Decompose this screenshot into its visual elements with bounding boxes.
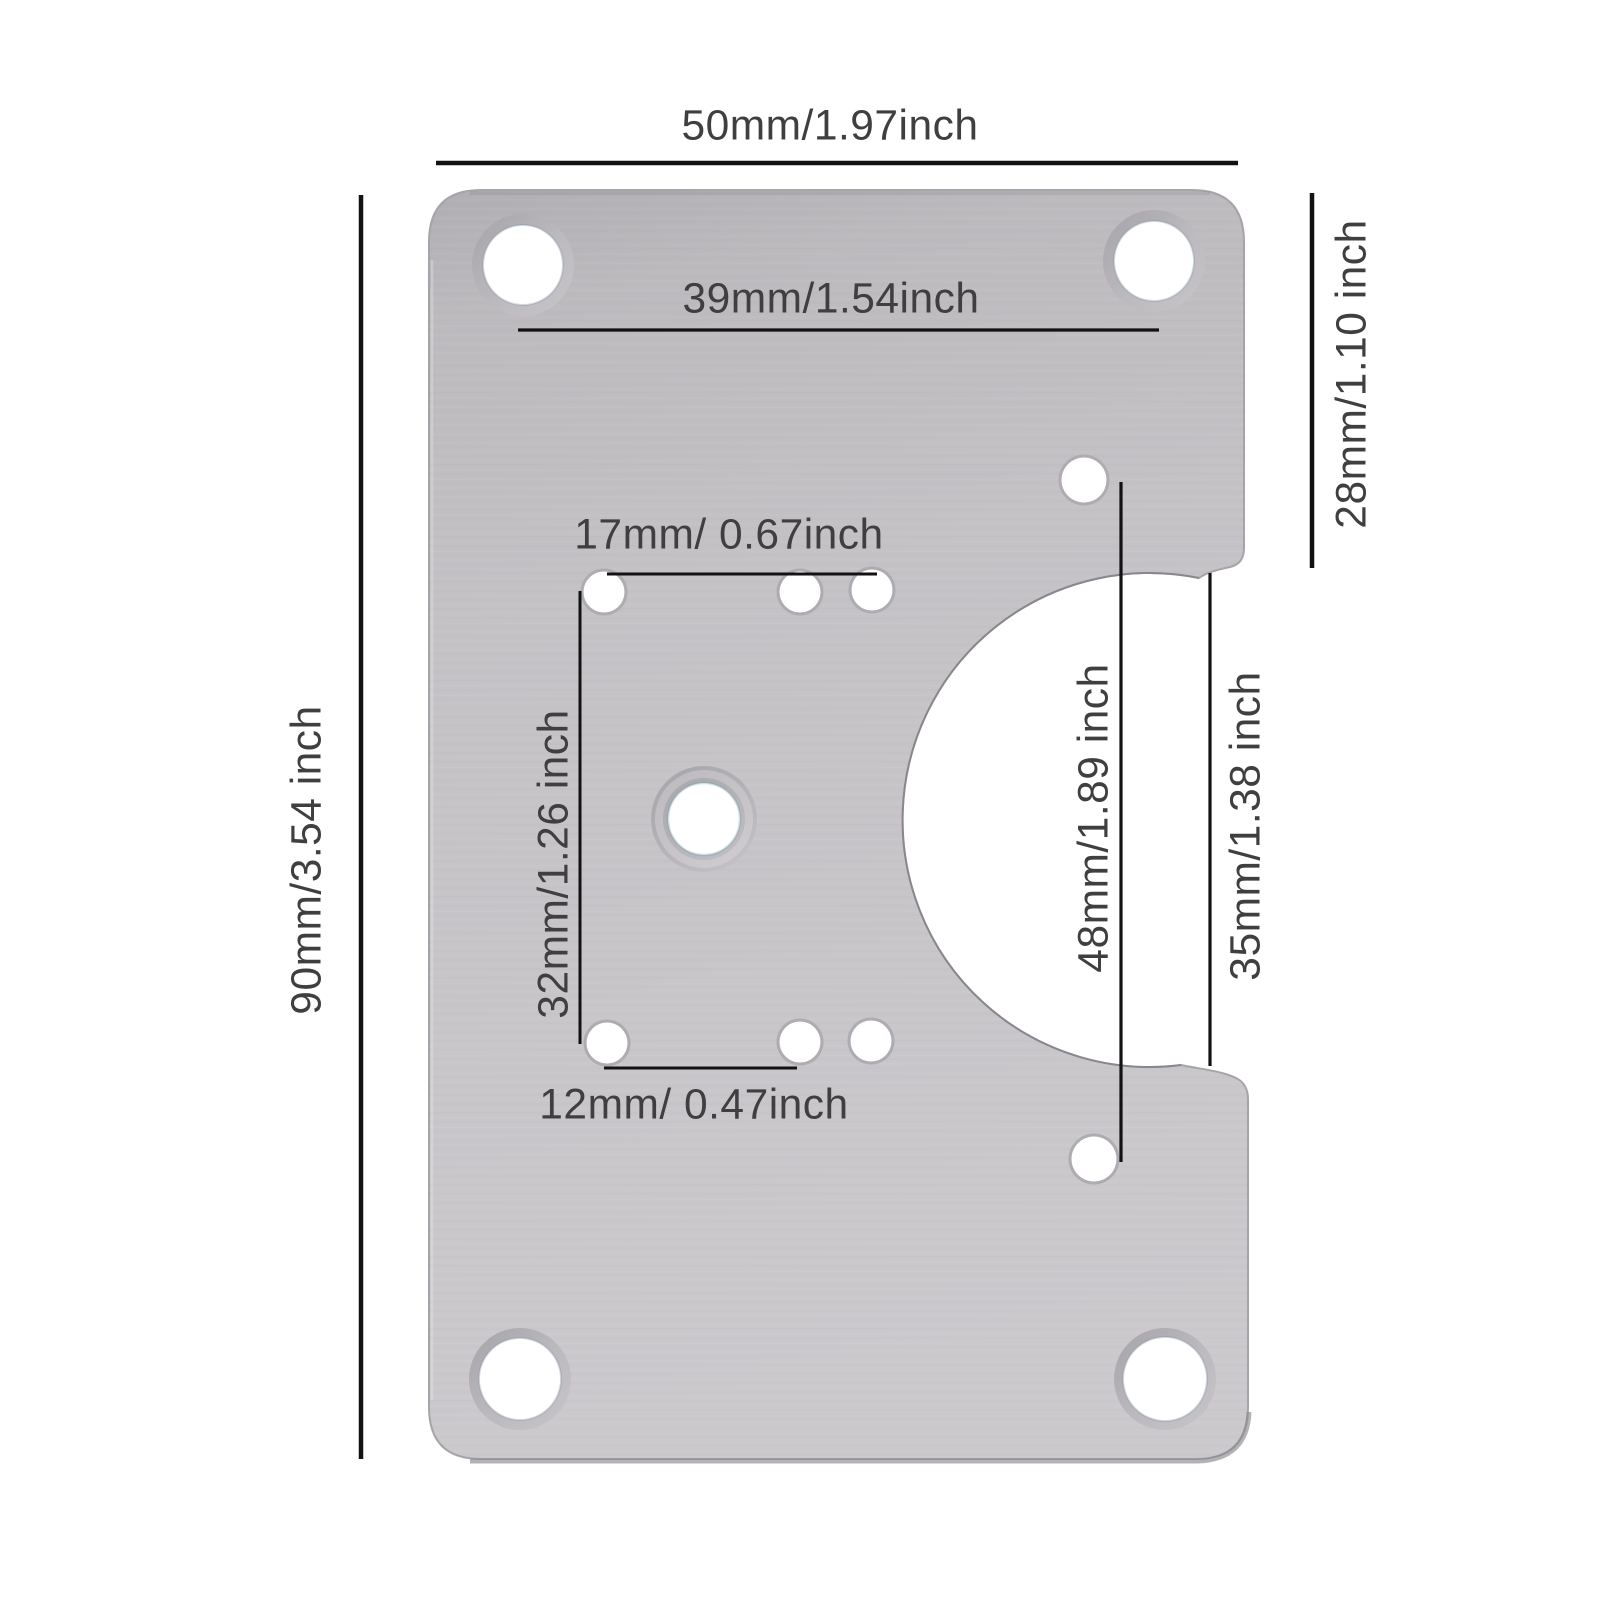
svg-text:50mm/1.97inch: 50mm/1.97inch	[681, 103, 978, 150]
svg-text:90mm/3.54 inch: 90mm/3.54 inch	[284, 705, 331, 1014]
svg-text:28mm/1.10 inch: 28mm/1.10 inch	[1329, 219, 1376, 528]
svg-text:32mm/1.26 inch: 32mm/1.26 inch	[531, 709, 578, 1018]
svg-text:12mm/ 0.47inch: 12mm/ 0.47inch	[539, 1082, 848, 1129]
svg-text:35mm/1.38 inch: 35mm/1.38 inch	[1223, 671, 1270, 980]
svg-text:17mm/ 0.67inch: 17mm/ 0.67inch	[574, 512, 883, 559]
svg-text:48mm/1.89 inch: 48mm/1.89 inch	[1071, 663, 1118, 972]
svg-text:39mm/1.54inch: 39mm/1.54inch	[682, 276, 979, 323]
